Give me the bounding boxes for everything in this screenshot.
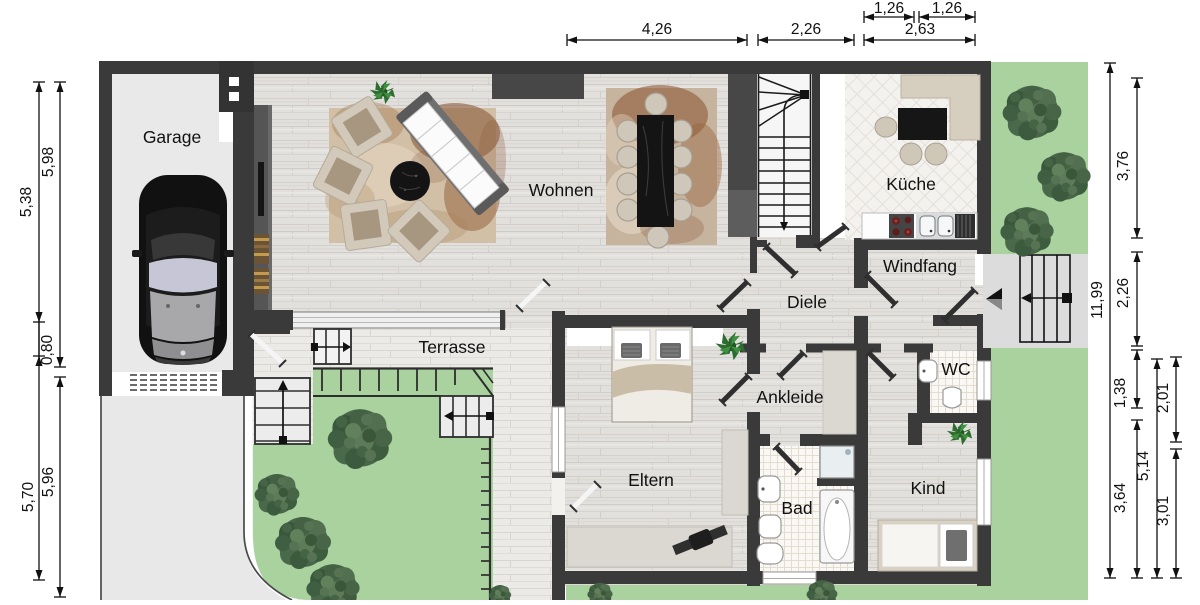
svg-text:Diele: Diele	[787, 292, 827, 312]
svg-text:2,26: 2,26	[1115, 278, 1132, 308]
svg-text:1,26: 1,26	[932, 0, 962, 17]
svg-text:Bad: Bad	[781, 498, 812, 518]
svg-text:Eltern: Eltern	[628, 470, 674, 490]
svg-text:4,26: 4,26	[642, 21, 672, 38]
svg-text:1,26: 1,26	[874, 0, 904, 17]
svg-text:0,80: 0,80	[39, 335, 56, 366]
svg-text:11,99: 11,99	[1089, 281, 1106, 319]
svg-text:Kind: Kind	[910, 478, 945, 498]
svg-text:3,01: 3,01	[1155, 496, 1172, 526]
svg-text:1,38: 1,38	[1112, 378, 1129, 408]
svg-text:Wohnen: Wohnen	[529, 180, 594, 200]
svg-text:Windfang: Windfang	[883, 256, 957, 276]
svg-text:5,70: 5,70	[20, 482, 37, 513]
svg-text:2,26: 2,26	[791, 21, 821, 38]
svg-text:5,98: 5,98	[40, 147, 57, 177]
svg-text:WC: WC	[941, 359, 970, 379]
svg-text:5,14: 5,14	[1135, 451, 1152, 482]
svg-text:Terrasse: Terrasse	[418, 337, 485, 357]
svg-text:5,38: 5,38	[18, 187, 35, 217]
svg-text:Küche: Küche	[886, 174, 936, 194]
svg-text:Ankleide: Ankleide	[756, 387, 823, 407]
svg-text:5,96: 5,96	[40, 467, 57, 497]
svg-text:Garage: Garage	[143, 127, 201, 147]
svg-text:2,01: 2,01	[1155, 383, 1172, 413]
svg-text:2,63: 2,63	[905, 21, 935, 38]
svg-text:3,76: 3,76	[1115, 151, 1132, 181]
svg-text:3,64: 3,64	[1112, 483, 1129, 514]
